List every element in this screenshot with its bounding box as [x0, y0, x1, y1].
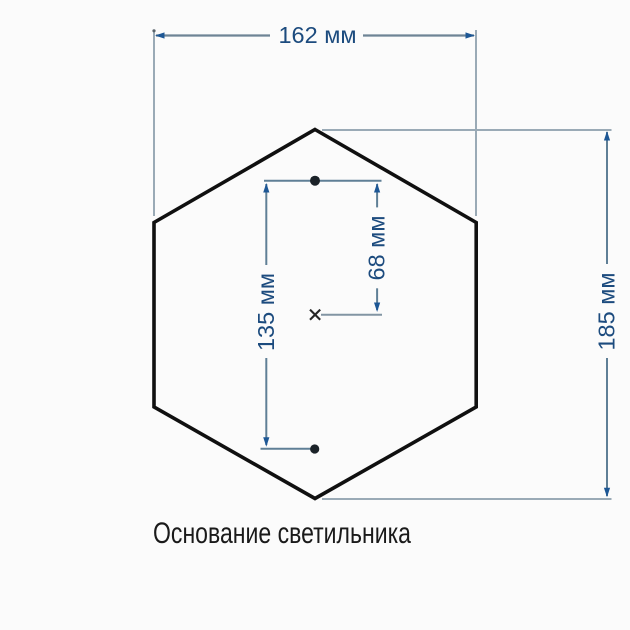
svg-text:68 мм: 68 мм: [364, 216, 390, 281]
svg-text:135 мм: 135 мм: [253, 273, 279, 351]
svg-text:162 мм: 162 мм: [278, 22, 356, 48]
svg-text:Основание светильника: Основание светильника: [153, 517, 411, 550]
svg-text:185 мм: 185 мм: [594, 272, 620, 350]
